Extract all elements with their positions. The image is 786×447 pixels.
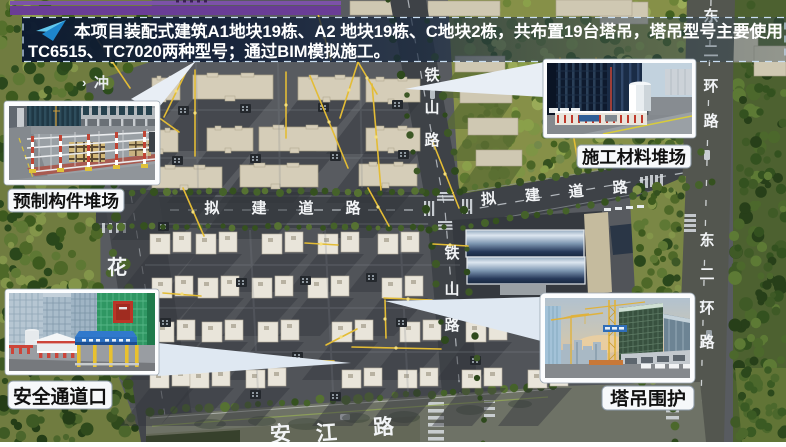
svg-text:施工材料堆场: 施工材料堆场: [582, 147, 686, 167]
svg-text:环: 环: [703, 78, 718, 95]
svg-text:建: 建: [251, 199, 267, 217]
svg-text:山: 山: [444, 281, 459, 298]
svg-text:环: 环: [699, 300, 714, 317]
svg-text:路: 路: [612, 178, 630, 197]
svg-text:道: 道: [298, 199, 313, 217]
svg-text:拟: 拟: [204, 199, 219, 217]
svg-text:安全通道口: 安全通道口: [13, 385, 107, 408]
svg-text:冲: 冲: [94, 74, 109, 92]
svg-text:路: 路: [345, 199, 361, 217]
svg-text:路: 路: [703, 112, 719, 130]
svg-text:东: 东: [699, 231, 714, 249]
svg-text:塔吊围护: 塔吊围护: [610, 388, 686, 409]
svg-text:本项目装配式建筑A1地块19栋、A2 地块19栋、C地块2栋: 本项目装配式建筑A1地块19栋、A2 地块19栋、C地块2栋，共布置19台塔吊，…: [74, 21, 783, 41]
svg-text:拟: 拟: [480, 189, 497, 208]
svg-text:安: 安: [269, 421, 292, 442]
svg-text:江: 江: [315, 421, 338, 442]
svg-text:花: 花: [107, 256, 127, 279]
svg-text:预制构件堆场: 预制构件堆场: [13, 191, 119, 211]
svg-text:路: 路: [372, 414, 396, 439]
svg-text:路: 路: [699, 333, 715, 351]
svg-text:铁: 铁: [444, 244, 459, 262]
svg-text:建: 建: [524, 185, 542, 204]
svg-text:路: 路: [424, 131, 440, 149]
svg-text:道: 道: [568, 182, 585, 201]
svg-text:›: ›: [82, 75, 86, 90]
svg-text:二: 二: [699, 266, 714, 283]
svg-text:山: 山: [424, 100, 439, 117]
svg-text:TC6515、TC7020两种型号；通过BIM模拟施工。: TC6515、TC7020两种型号；通过BIM模拟施工。: [28, 41, 390, 61]
svg-text:铁: 铁: [424, 66, 439, 84]
